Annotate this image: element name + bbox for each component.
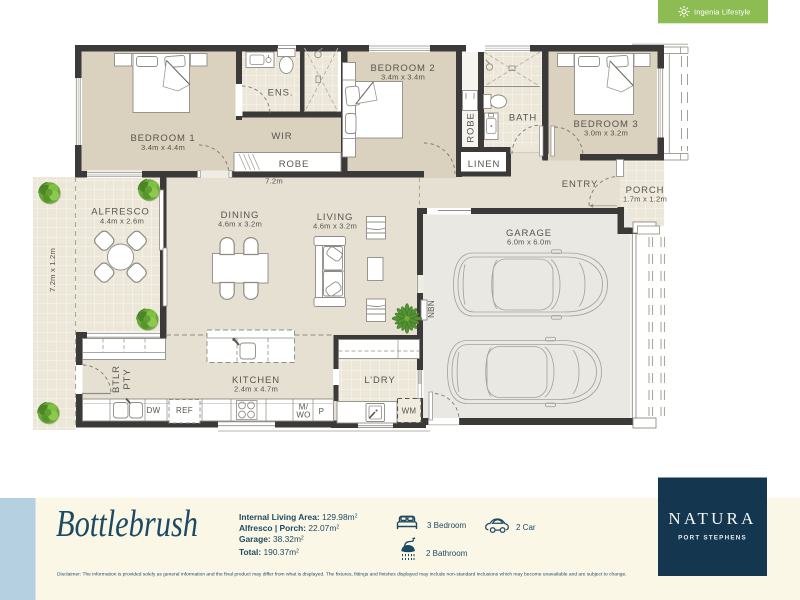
svg-text:4.6m x 3.2m: 4.6m x 3.2m [313,222,357,231]
svg-text:P: P [319,407,325,416]
svg-text:Disclaimer: The information is: Disclaimer: The information is provided … [57,572,627,578]
svg-text:Garage: 38.32m2: Garage: 38.32m2 [239,534,304,544]
svg-text:PTY: PTY [122,368,133,389]
svg-text:NBN: NBN [427,300,436,318]
svg-text:WO: WO [296,411,310,420]
svg-text:BTLR: BTLR [111,365,122,393]
svg-text:Internal Living Area: 129.98m2: Internal Living Area: 129.98m2 [239,512,358,522]
svg-text:WIR: WIR [271,131,292,142]
svg-text:3.4m x 4.4m: 3.4m x 4.4m [141,143,185,152]
svg-text:Ingenia Lifestyle: Ingenia Lifestyle [694,7,751,16]
svg-text:3 Bedroom: 3 Bedroom [427,521,466,530]
svg-text:7.2m x 1.2m: 7.2m x 1.2m [48,248,57,292]
svg-text:7.2m: 7.2m [265,177,283,186]
svg-text:Bottlebrush: Bottlebrush [56,503,198,545]
svg-text:LINEN: LINEN [468,159,500,170]
svg-text:ROBE: ROBE [279,159,310,170]
svg-text:3.4m x 3.4m: 3.4m x 3.4m [381,73,425,82]
svg-text:4.4m x 2.6m: 4.4m x 2.6m [100,217,144,226]
svg-text:3.0m x 3.2m: 3.0m x 3.2m [584,129,628,138]
svg-text:NATURA: NATURA [668,509,756,528]
svg-text:2 Bathroom: 2 Bathroom [426,549,468,558]
svg-text:2 Car: 2 Car [516,523,536,532]
svg-text:PORT STEPHENS: PORT STEPHENS [678,535,747,542]
svg-text:ROBE: ROBE [466,112,477,143]
svg-text:ENTRY: ENTRY [562,179,599,190]
svg-text:BATH: BATH [509,113,537,124]
svg-text:DW: DW [147,406,161,415]
svg-text:REF: REF [176,406,193,415]
svg-text:2.4m x 4.7m: 2.4m x 4.7m [234,385,278,394]
svg-text:1.7m x 1.2m: 1.7m x 1.2m [623,195,667,204]
svg-text:4.6m x 3.2m: 4.6m x 3.2m [218,220,262,229]
svg-text:Total: 190.37m2: Total: 190.37m2 [239,547,299,557]
svg-text:Alfresco | Porch: 22.07m2: Alfresco | Porch: 22.07m2 [239,523,339,533]
svg-text:L’DRY: L’DRY [364,375,395,386]
svg-text:WM: WM [402,407,417,416]
svg-text:6.0m x 6.0m: 6.0m x 6.0m [507,238,551,247]
svg-text:ENS.: ENS. [268,88,294,99]
